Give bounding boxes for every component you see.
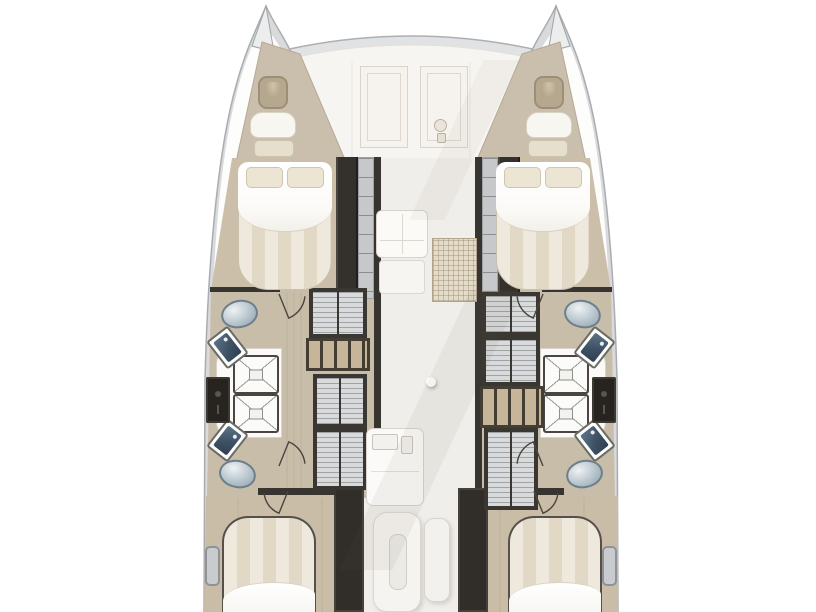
catamaran-floorplan: Top-down deck floor plan of a sailing ca… xyxy=(0,0,816,612)
stbd-aft-cabin-door xyxy=(534,491,558,513)
port-bath-aft-door xyxy=(279,442,305,466)
port-aft-cabin-door xyxy=(264,491,288,513)
door-arc-layer xyxy=(0,0,816,612)
stbd-bath-fwd-door xyxy=(517,294,543,318)
port-bath-fwd-door xyxy=(279,294,305,318)
stbd-bath-aft-door xyxy=(517,442,543,466)
